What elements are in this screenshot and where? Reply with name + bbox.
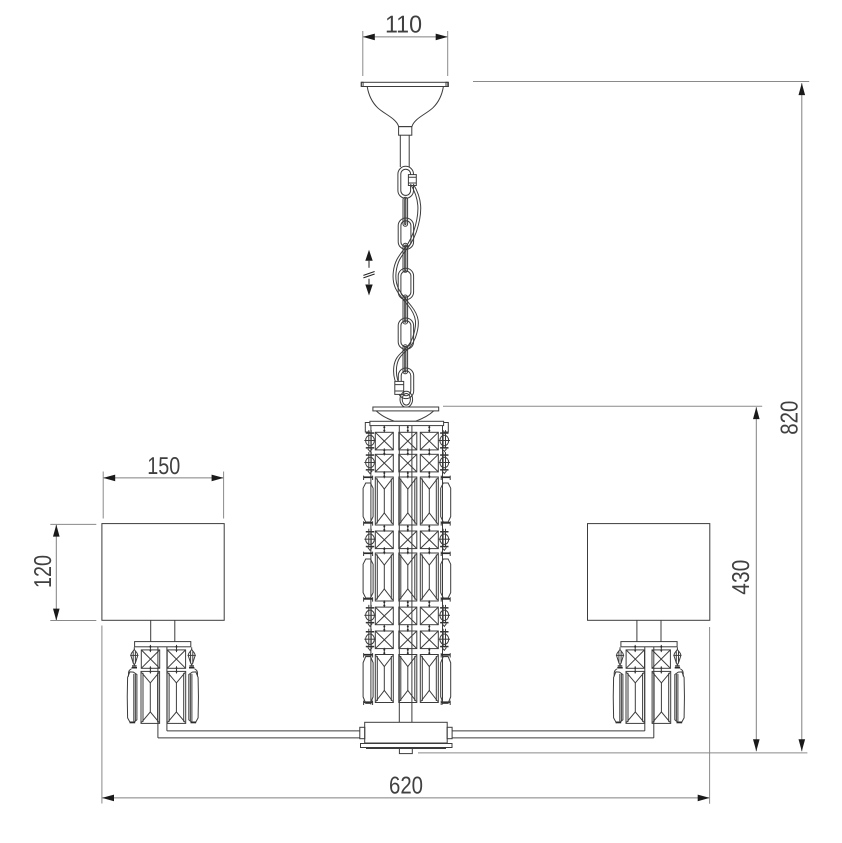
svg-text:430: 430 xyxy=(728,560,755,595)
svg-text:110: 110 xyxy=(385,12,422,39)
svg-text:120: 120 xyxy=(30,555,57,588)
svg-text:150: 150 xyxy=(147,453,180,480)
svg-text:820: 820 xyxy=(777,401,804,435)
svg-text:620: 620 xyxy=(389,772,423,799)
